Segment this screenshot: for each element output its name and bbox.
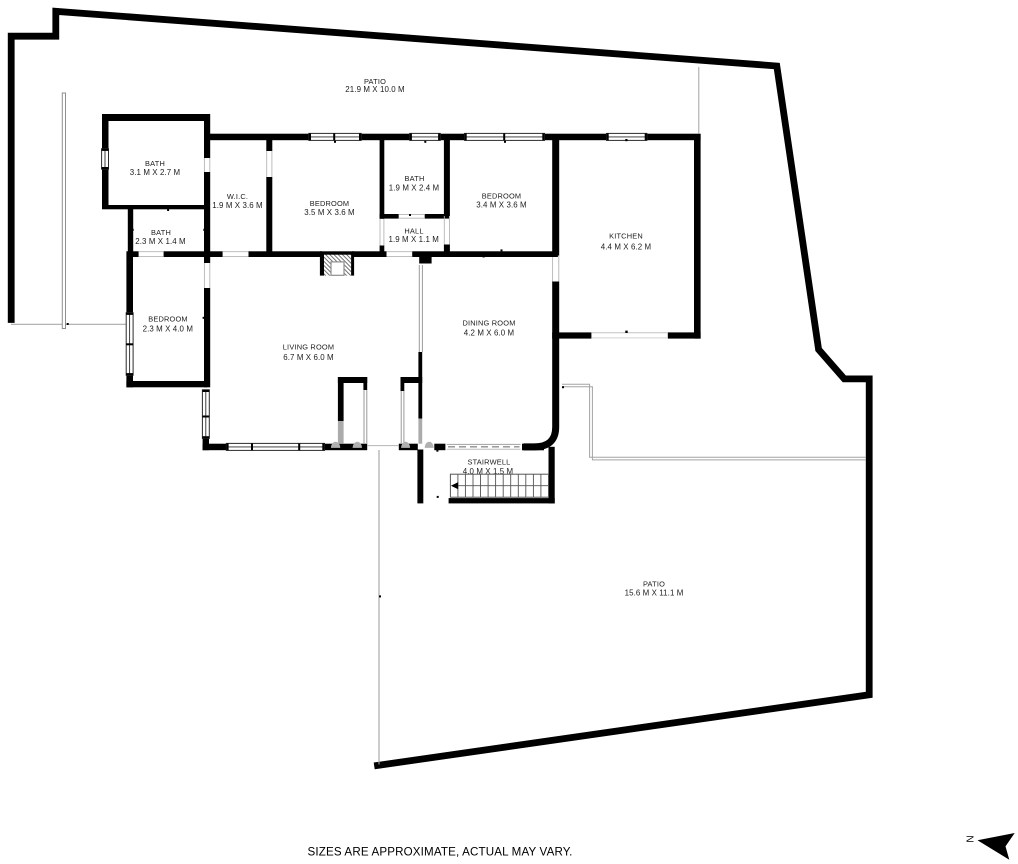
svg-text:2.3 M X 4.0 M: 2.3 M X 4.0 M [143,324,193,333]
svg-text:15.6 M X 11.1 M: 15.6 M X 11.1 M [625,589,684,598]
svg-text:BATH: BATH [151,228,171,237]
svg-text:W.I.C.: W.I.C. [227,192,248,201]
svg-text:PATIO: PATIO [643,580,665,589]
svg-text:N: N [964,835,975,842]
svg-text:BATH: BATH [405,174,425,183]
svg-text:1.9 M X 3.6 M: 1.9 M X 3.6 M [212,201,262,210]
svg-text:3.5 M X 3.6 M: 3.5 M X 3.6 M [304,208,354,217]
svg-text:BEDROOM: BEDROOM [148,314,188,323]
svg-text:3.4 M X 3.6 M: 3.4 M X 3.6 M [476,201,526,210]
svg-text:21.9 M X 10.0 M: 21.9 M X 10.0 M [345,85,404,94]
svg-text:BEDROOM: BEDROOM [482,192,522,201]
svg-text:6.7 M X 6.0 M: 6.7 M X 6.0 M [283,353,333,362]
svg-text:1.9 M X 1.1 M: 1.9 M X 1.1 M [388,235,438,244]
svg-text:3.1 M X 2.7 M: 3.1 M X 2.7 M [130,168,180,177]
svg-text:4.2 M X 6.0 M: 4.2 M X 6.0 M [464,329,514,338]
svg-text:1.9 M X 2.4 M: 1.9 M X 2.4 M [389,183,439,192]
svg-text:BEDROOM: BEDROOM [310,199,350,208]
svg-text:DINING ROOM: DINING ROOM [462,319,515,328]
svg-text:LIVING ROOM: LIVING ROOM [283,343,334,352]
svg-text:BATH: BATH [145,159,165,168]
svg-text:STAIRWELL: STAIRWELL [467,457,510,466]
svg-text:KITCHEN: KITCHEN [609,232,643,241]
svg-text:SIZES ARE APPROXIMATE, ACTUAL: SIZES ARE APPROXIMATE, ACTUAL MAY VARY. [307,846,572,859]
svg-text:2.3 M X 1.4 M: 2.3 M X 1.4 M [135,237,185,246]
svg-text:4.4 M X 6.2 M: 4.4 M X 6.2 M [601,242,651,251]
